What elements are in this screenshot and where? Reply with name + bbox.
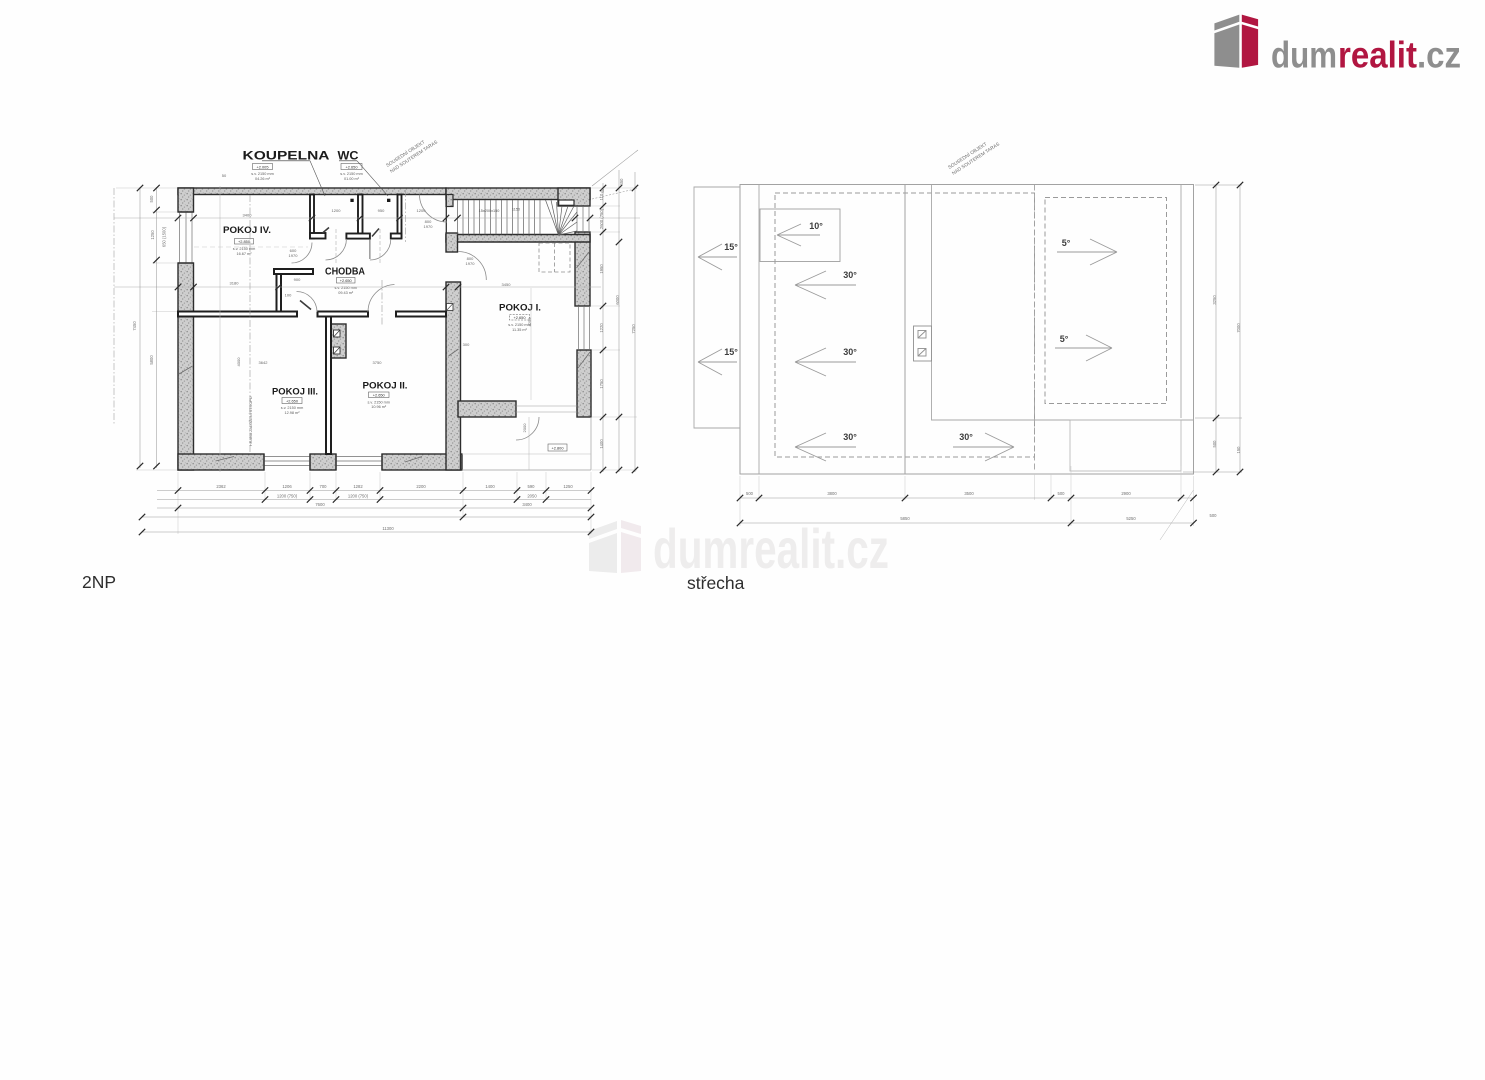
svg-text:2362: 2362 (216, 484, 226, 489)
svg-text:1400: 1400 (599, 439, 604, 449)
svg-text:7250: 7250 (631, 324, 636, 334)
svg-text:7450: 7450 (132, 321, 137, 331)
svg-text:+2.800: +2.800 (551, 445, 564, 450)
svg-text:4000: 4000 (236, 357, 241, 367)
svg-text:+2.650: +2.650 (373, 392, 386, 397)
svg-text:2200: 2200 (416, 484, 426, 489)
svg-text:15x200x150: 15x200x150 (479, 209, 500, 213)
svg-text:650 (1500): 650 (1500) (162, 226, 167, 247)
svg-text:1970: 1970 (289, 253, 299, 258)
svg-text:11.35 m²: 11.35 m² (512, 328, 527, 332)
svg-text:+2.005: +2.005 (256, 164, 268, 169)
svg-text:+2.650: +2.650 (345, 164, 358, 169)
svg-text:1400: 1400 (485, 484, 495, 489)
svg-text:POKOJ II.: POKOJ II. (363, 381, 408, 392)
svg-text:s.v. 2150 mm: s.v. 2150 mm (281, 406, 304, 410)
svg-text:2000: 2000 (522, 423, 527, 433)
svg-text:150: 150 (1236, 446, 1241, 454)
svg-text:+2.650: +2.650 (513, 315, 526, 320)
svg-text:950: 950 (378, 208, 385, 213)
svg-text:2050: 2050 (527, 493, 537, 498)
svg-text:15°: 15° (724, 347, 738, 357)
svg-text:30°: 30° (843, 432, 857, 442)
svg-text:POKOJ I.: POKOJ I. (499, 303, 541, 314)
svg-text:11300: 11300 (382, 526, 394, 531)
svg-text:7000: 7000 (1236, 323, 1241, 333)
svg-text:500: 500 (1058, 491, 1066, 496)
svg-text:2900: 2900 (1121, 491, 1131, 496)
svg-text:realit: realit (1338, 35, 1417, 76)
svg-text:CHODBA: CHODBA (325, 266, 365, 278)
svg-text:1206: 1206 (282, 484, 292, 489)
svg-text:3800: 3800 (827, 491, 837, 496)
svg-text:1282: 1282 (353, 484, 363, 489)
svg-text:5850: 5850 (900, 516, 910, 521)
svg-text:2600 (750): 2600 (750) (599, 208, 604, 229)
svg-text:1200: 1200 (417, 208, 427, 213)
svg-text:3250: 3250 (1212, 295, 1217, 305)
svg-text:6000: 6000 (615, 295, 620, 305)
svg-text:2NP: 2NP (82, 572, 116, 592)
svg-text:5800: 5800 (149, 355, 154, 365)
svg-text:7600: 7600 (315, 502, 325, 507)
svg-text:700: 700 (320, 484, 328, 489)
svg-text:+2.850: +2.850 (238, 239, 251, 244)
svg-text:1150: 1150 (512, 208, 520, 212)
svg-text:5°: 5° (1062, 238, 1071, 248)
svg-text:40: 40 (600, 188, 605, 193)
svg-text:3400: 3400 (243, 213, 253, 218)
svg-text:4250: 4250 (527, 317, 532, 327)
svg-text:3450: 3450 (502, 282, 512, 287)
svg-text:30°: 30° (843, 347, 857, 357)
svg-text:POKOJ III.: POKOJ III. (272, 387, 318, 398)
svg-text:3180: 3180 (230, 281, 240, 286)
svg-text:1970: 1970 (466, 261, 476, 266)
svg-text:3500: 3500 (964, 491, 974, 496)
svg-text:s.v. 2150 mm: s.v. 2150 mm (367, 400, 390, 404)
svg-text:5250: 5250 (1126, 516, 1136, 521)
svg-text:30°: 30° (843, 270, 857, 280)
svg-text:500: 500 (149, 195, 154, 203)
svg-text:1220: 1220 (599, 323, 604, 333)
svg-text:900: 900 (294, 277, 301, 282)
svg-text:12.98 m²: 12.98 m² (285, 411, 301, 415)
svg-text:30°: 30° (959, 432, 973, 442)
svg-text:04.26 m²: 04.26 m² (255, 177, 271, 181)
svg-text:3400: 3400 (522, 502, 532, 507)
svg-text:POKOJ IV.: POKOJ IV. (223, 225, 271, 236)
svg-text:50: 50 (222, 173, 227, 178)
svg-text:.cz: .cz (1417, 35, 1461, 76)
svg-text:s.v. 2150 mm: s.v. 2150 mm (233, 247, 256, 251)
svg-text:500: 500 (1212, 440, 1217, 448)
svg-text:1950: 1950 (599, 264, 604, 274)
svg-text:dumrealit.cz: dumrealit.cz (653, 517, 889, 580)
svg-text:3750: 3750 (373, 360, 383, 365)
svg-text:s.v. 2150 mm: s.v. 2150 mm (251, 172, 274, 176)
svg-text:dum: dum (1271, 35, 1337, 76)
svg-text:01.00 m²: 01.00 m² (344, 177, 360, 181)
svg-text:09.43 m²: 09.43 m² (338, 291, 354, 295)
svg-text:1200: 1200 (332, 208, 342, 213)
svg-text:+2.650: +2.650 (286, 398, 299, 403)
svg-text:1970: 1970 (424, 224, 434, 229)
svg-text:+2.650: +2.650 (340, 278, 353, 283)
svg-text:s.v. 2150 mm: s.v. 2150 mm (340, 172, 363, 176)
svg-text:500: 500 (746, 491, 754, 496)
svg-text:15°: 15° (724, 242, 738, 252)
svg-text:HRANA ZALOŽENÍ STROPU: HRANA ZALOŽENÍ STROPU (248, 396, 253, 446)
svg-text:s.v. 2150 mm: s.v. 2150 mm (334, 286, 357, 290)
svg-text:3642: 3642 (259, 360, 269, 365)
svg-text:590: 590 (528, 484, 536, 489)
svg-text:300: 300 (463, 342, 470, 347)
svg-text:1250: 1250 (150, 230, 155, 240)
svg-text:1250: 1250 (563, 484, 573, 489)
svg-text:10°: 10° (809, 221, 823, 231)
svg-text:střecha: střecha (687, 573, 745, 593)
svg-text:100: 100 (285, 293, 292, 298)
svg-text:5°: 5° (1060, 334, 1069, 344)
svg-text:1200 (750): 1200 (750) (348, 493, 369, 498)
svg-text:1200 (750): 1200 (750) (277, 493, 298, 498)
svg-text:500: 500 (1210, 513, 1218, 518)
svg-text:1750: 1750 (599, 379, 604, 389)
svg-text:450: 450 (619, 178, 624, 186)
svg-text:10.96 m²: 10.96 m² (371, 405, 387, 409)
